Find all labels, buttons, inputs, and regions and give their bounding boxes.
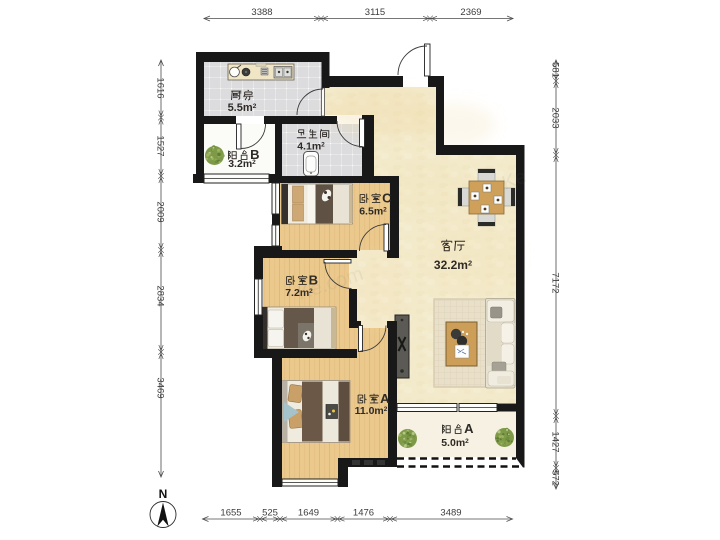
svg-text:1655: 1655 [220,508,241,519]
svg-text:581: 581 [550,62,561,78]
svg-text:1476: 1476 [353,508,374,519]
svg-text:11.0m2: 11.0m2 [355,405,388,417]
svg-text:5.0m2: 5.0m2 [441,437,469,449]
svg-text:A: A [464,421,474,436]
svg-text:3469: 3469 [155,377,166,398]
svg-text:1527: 1527 [155,135,166,156]
svg-text:3489: 3489 [440,508,461,519]
svg-text:A: A [380,391,390,406]
svg-text:7172: 7172 [550,272,561,293]
svg-text:6.5m2: 6.5m2 [359,206,387,218]
svg-text:1427: 1427 [550,431,561,452]
svg-text:4.1m2: 4.1m2 [297,141,325,153]
svg-text:32.2m2: 32.2m2 [434,258,472,272]
svg-text:572: 572 [550,470,561,486]
svg-text:3.2m2: 3.2m2 [228,158,256,170]
svg-text:N: N [159,487,168,501]
svg-text:2369: 2369 [460,7,481,18]
svg-text:2834: 2834 [155,285,166,306]
svg-text:2009: 2009 [155,201,166,222]
svg-text:1616: 1616 [155,77,166,98]
svg-text:1649: 1649 [298,508,319,519]
svg-text:3115: 3115 [365,7,385,18]
svg-text:5.5m2: 5.5m2 [228,102,257,114]
svg-text:C: C [382,191,392,206]
svg-text:3388: 3388 [251,7,272,18]
svg-text:525: 525 [262,508,278,519]
svg-text:2033: 2033 [550,107,561,128]
